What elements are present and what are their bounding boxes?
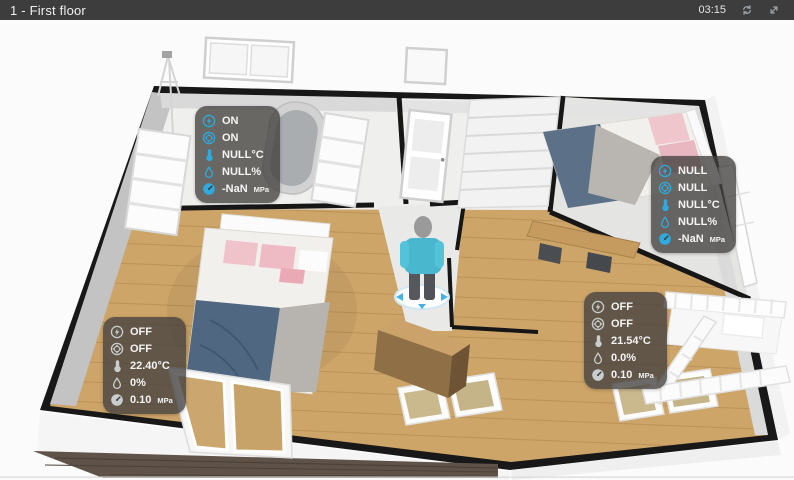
hallway-door bbox=[401, 110, 452, 202]
sensor-value: 0% bbox=[130, 377, 146, 389]
sensor-value: OFF bbox=[611, 301, 633, 313]
sensor-panel-kids-room[interactable]: OFF OFF 21.54°C 0.0% 0.10 MPa bbox=[584, 292, 667, 389]
staircase bbox=[458, 97, 560, 208]
sensor-value: NULL% bbox=[678, 216, 717, 228]
temperature-icon bbox=[110, 359, 124, 373]
sensor-row: NULL bbox=[658, 180, 726, 195]
sensor-value: NULL% bbox=[222, 166, 261, 178]
temperature-icon bbox=[591, 334, 605, 348]
sensor-row: OFF bbox=[591, 299, 657, 314]
power-icon bbox=[202, 114, 216, 128]
sensor-row: 0.0% bbox=[591, 350, 657, 365]
sensor-value: 21.54°C bbox=[611, 335, 651, 347]
floorplan-header: 1 - First floor 03:15 bbox=[0, 0, 794, 20]
pressure-icon bbox=[202, 182, 216, 196]
sensor-row: 0.10 MPa bbox=[591, 367, 657, 382]
sensor-row: 21.54°C bbox=[591, 333, 657, 348]
sensor-value: NULL°C bbox=[678, 199, 720, 211]
page-title: 1 - First floor bbox=[0, 3, 698, 18]
window-back-small bbox=[405, 48, 447, 84]
window-back-double bbox=[204, 38, 294, 83]
sensor-value: ON bbox=[222, 115, 239, 127]
refresh-button[interactable] bbox=[740, 3, 754, 17]
sensor-value: 22.40°C bbox=[130, 360, 170, 372]
sensor-row: 0% bbox=[110, 375, 176, 390]
temperature-icon bbox=[202, 148, 216, 162]
power-icon bbox=[658, 164, 672, 178]
sensor-value: 0.10 bbox=[130, 394, 151, 406]
humidity-icon bbox=[202, 165, 216, 179]
pressure-icon bbox=[591, 368, 605, 382]
sensor-value: NULL°C bbox=[222, 149, 264, 161]
sensor-value: -NaN bbox=[678, 233, 704, 245]
sensor-row: NULL% bbox=[202, 164, 270, 179]
sensor-value: 0.10 bbox=[611, 369, 632, 381]
valve-icon bbox=[202, 131, 216, 145]
fullscreen-icon bbox=[768, 4, 780, 16]
sensor-value: ON bbox=[222, 132, 239, 144]
sensor-unit: MPa bbox=[157, 396, 172, 407]
sensor-value: OFF bbox=[130, 343, 152, 355]
sensor-panel-master-bedroom[interactable]: OFF OFF 22.40°C 0% 0.10 MPa bbox=[103, 317, 186, 414]
sensor-row: -NaN MPa bbox=[202, 181, 270, 196]
refresh-icon bbox=[741, 4, 753, 16]
sensor-value: -NaN bbox=[222, 183, 248, 195]
valve-icon bbox=[591, 317, 605, 331]
sensor-row: NULL°C bbox=[202, 147, 270, 162]
sensor-row: OFF bbox=[110, 324, 176, 339]
bottom-divider bbox=[0, 477, 794, 478]
valve-icon bbox=[658, 181, 672, 195]
clock-label: 03:15 bbox=[698, 4, 726, 16]
sensor-unit: MPa bbox=[710, 235, 725, 246]
valve-icon bbox=[110, 342, 124, 356]
sensor-row: ON bbox=[202, 113, 270, 128]
sensor-value: OFF bbox=[130, 326, 152, 338]
sensor-panel-bedroom-right[interactable]: NULL NULL NULL°C NULL% -NaN MPa bbox=[651, 156, 736, 253]
humidity-icon bbox=[658, 215, 672, 229]
sensor-panel-bathroom[interactable]: ON ON NULL°C NULL% -NaN MPa bbox=[195, 106, 280, 203]
sensor-unit: MPa bbox=[254, 185, 269, 196]
sensor-value: NULL bbox=[678, 182, 707, 194]
pressure-icon bbox=[658, 232, 672, 246]
sensor-row: OFF bbox=[591, 316, 657, 331]
temperature-icon bbox=[658, 198, 672, 212]
sensor-row: OFF bbox=[110, 341, 176, 356]
sensor-unit: MPa bbox=[638, 371, 653, 382]
sensor-value: 0.0% bbox=[611, 352, 636, 364]
pressure-icon bbox=[110, 393, 124, 407]
sensor-value: NULL bbox=[678, 165, 707, 177]
sensor-row: 0.10 MPa bbox=[110, 392, 176, 407]
power-icon bbox=[591, 300, 605, 314]
humidity-icon bbox=[591, 351, 605, 365]
sensor-row: 22.40°C bbox=[110, 358, 176, 373]
sensor-row: NULL% bbox=[658, 214, 726, 229]
sensor-row: NULL bbox=[658, 163, 726, 178]
sensor-value: OFF bbox=[611, 318, 633, 330]
sensor-row: NULL°C bbox=[658, 197, 726, 212]
sensor-row: ON bbox=[202, 130, 270, 145]
power-icon bbox=[110, 325, 124, 339]
fullscreen-button[interactable] bbox=[767, 3, 781, 17]
humidity-icon bbox=[110, 376, 124, 390]
sensor-row: -NaN MPa bbox=[658, 231, 726, 246]
